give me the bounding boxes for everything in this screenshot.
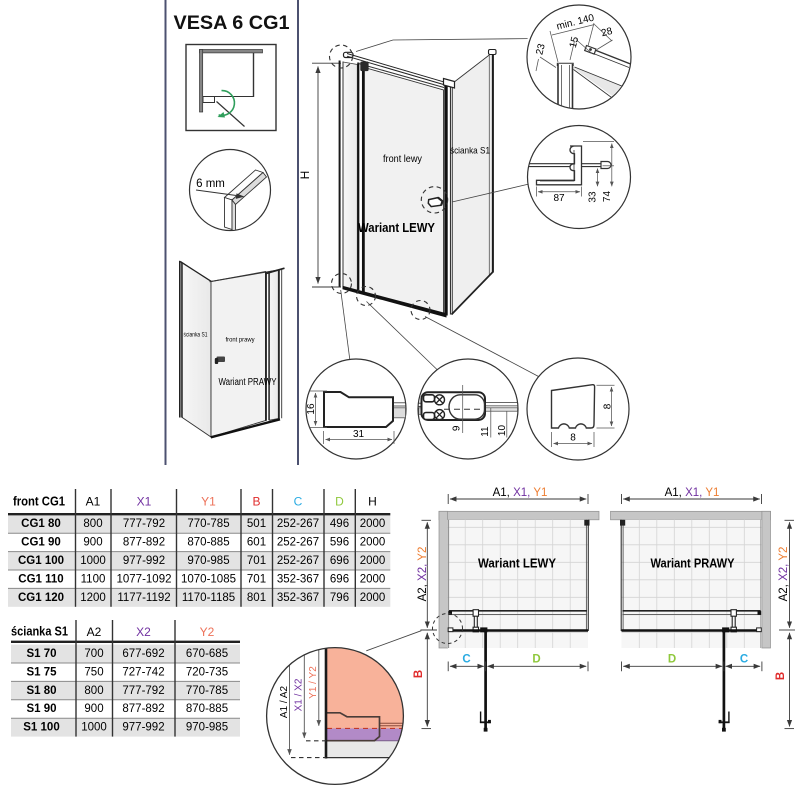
svg-text:2000: 2000 xyxy=(360,555,386,567)
svg-text:701: 701 xyxy=(247,555,266,567)
svg-text:D: D xyxy=(335,495,344,509)
svg-text:877-892: 877-892 xyxy=(122,703,164,715)
svg-text:A1: A1 xyxy=(86,495,101,509)
svg-text:Y1: Y1 xyxy=(201,495,216,509)
svg-text:Y2: Y2 xyxy=(200,625,215,639)
svg-text:352-367: 352-367 xyxy=(277,573,319,585)
svg-text:750: 750 xyxy=(84,666,103,678)
svg-text:252-267: 252-267 xyxy=(277,518,319,530)
svg-text:front prawy: front prawy xyxy=(226,337,256,344)
svg-text:S1 80: S1 80 xyxy=(26,685,56,697)
svg-text:A2, X2, Y2: A2, X2, Y2 xyxy=(417,547,429,602)
svg-text:596: 596 xyxy=(330,537,349,549)
svg-text:900: 900 xyxy=(83,537,102,549)
svg-text:1170-1185: 1170-1185 xyxy=(182,592,235,604)
svg-text:front lewy: front lewy xyxy=(383,154,422,165)
svg-text:CG1 90: CG1 90 xyxy=(21,537,61,549)
svg-text:252-267: 252-267 xyxy=(277,555,319,567)
svg-text:2000: 2000 xyxy=(360,518,386,530)
svg-text:696: 696 xyxy=(330,573,349,585)
svg-text:31: 31 xyxy=(353,429,365,440)
svg-text:701: 701 xyxy=(247,573,266,585)
svg-text:670-685: 670-685 xyxy=(186,648,228,660)
svg-text:VESA 6 CG1: VESA 6 CG1 xyxy=(174,12,290,34)
svg-text:8: 8 xyxy=(570,433,576,444)
svg-text:720-735: 720-735 xyxy=(186,666,228,678)
svg-text:C: C xyxy=(294,495,303,509)
svg-text:A2, X2, Y2: A2, X2, Y2 xyxy=(778,547,790,602)
svg-text:970-985: 970-985 xyxy=(187,555,229,567)
svg-text:2000: 2000 xyxy=(360,573,386,585)
svg-text:Y1 / Y2: Y1 / Y2 xyxy=(308,666,319,699)
svg-text:601: 601 xyxy=(247,537,266,549)
svg-text:727-742: 727-742 xyxy=(122,666,164,678)
svg-text:770-785: 770-785 xyxy=(186,685,228,697)
svg-text:Wariant LEWY: Wariant LEWY xyxy=(478,557,557,571)
svg-text:A1 / A2: A1 / A2 xyxy=(279,685,290,718)
svg-text:H: H xyxy=(368,495,377,509)
svg-text:2000: 2000 xyxy=(360,537,386,549)
svg-text:8: 8 xyxy=(602,403,613,409)
svg-text:CG1 110: CG1 110 xyxy=(18,573,63,585)
svg-text:496: 496 xyxy=(330,518,349,530)
svg-text:CG1 100: CG1 100 xyxy=(18,555,64,567)
svg-text:11: 11 xyxy=(480,426,491,437)
svg-text:X2: X2 xyxy=(136,625,151,639)
svg-text:6 mm: 6 mm xyxy=(196,178,225,190)
svg-text:B: B xyxy=(775,672,787,680)
svg-text:801: 801 xyxy=(247,592,266,604)
svg-text:970-985: 970-985 xyxy=(186,722,228,734)
svg-text:S1 70: S1 70 xyxy=(26,648,56,660)
svg-text:S1 75: S1 75 xyxy=(26,666,57,678)
svg-text:10: 10 xyxy=(497,425,508,437)
svg-text:Wariant PRAWY: Wariant PRAWY xyxy=(651,557,736,571)
svg-text:X1 / X2: X1 / X2 xyxy=(294,678,305,711)
svg-text:1070-1085: 1070-1085 xyxy=(181,573,236,585)
svg-text:870-885: 870-885 xyxy=(186,703,228,715)
svg-text:C: C xyxy=(462,654,470,666)
svg-text:9: 9 xyxy=(452,425,463,431)
svg-text:A1, X1, Y1: A1, X1, Y1 xyxy=(665,487,720,499)
svg-text:A1, X1, Y1: A1, X1, Y1 xyxy=(493,487,548,499)
svg-text:700: 700 xyxy=(84,648,103,660)
svg-text:B: B xyxy=(252,495,260,509)
svg-text:796: 796 xyxy=(330,592,349,604)
svg-text:252-267: 252-267 xyxy=(277,537,319,549)
svg-text:X1: X1 xyxy=(137,495,152,509)
svg-text:S1 90: S1 90 xyxy=(26,703,56,715)
svg-text:877-892: 877-892 xyxy=(123,537,165,549)
svg-text:870-885: 870-885 xyxy=(187,537,229,549)
svg-text:2000: 2000 xyxy=(360,592,386,604)
svg-text:CG1 80: CG1 80 xyxy=(21,518,61,530)
svg-text:900: 900 xyxy=(84,703,103,715)
svg-text:front CG1: front CG1 xyxy=(13,495,65,509)
svg-text:ścianka S1: ścianka S1 xyxy=(184,332,208,339)
svg-text:S1 100: S1 100 xyxy=(23,722,59,734)
svg-text:H: H xyxy=(298,171,312,180)
svg-text:501: 501 xyxy=(247,518,266,530)
svg-text:33: 33 xyxy=(588,191,599,203)
svg-text:977-992: 977-992 xyxy=(123,555,165,567)
svg-text:D: D xyxy=(532,654,540,666)
svg-text:C: C xyxy=(740,654,748,666)
svg-text:352-367: 352-367 xyxy=(277,592,319,604)
svg-text:D: D xyxy=(668,654,676,666)
svg-text:87: 87 xyxy=(553,193,565,204)
svg-text:977-992: 977-992 xyxy=(122,722,164,734)
svg-text:777-792: 777-792 xyxy=(123,518,165,530)
svg-text:CG1 120: CG1 120 xyxy=(18,592,64,604)
svg-text:1100: 1100 xyxy=(81,573,106,585)
svg-text:ścianka S1: ścianka S1 xyxy=(11,625,68,639)
svg-text:Wariant PRAWY: Wariant PRAWY xyxy=(219,377,277,388)
svg-text:770-785: 770-785 xyxy=(187,518,229,530)
svg-text:1077-1092: 1077-1092 xyxy=(117,573,172,585)
svg-text:1177-1192: 1177-1192 xyxy=(117,592,170,604)
svg-text:A2: A2 xyxy=(87,625,102,639)
svg-text:1000: 1000 xyxy=(80,555,106,567)
svg-text:1000: 1000 xyxy=(81,722,107,734)
svg-text:677-692: 677-692 xyxy=(122,648,164,660)
svg-text:800: 800 xyxy=(84,685,103,697)
svg-text:B: B xyxy=(413,670,425,678)
svg-text:16: 16 xyxy=(306,403,317,415)
svg-text:777-792: 777-792 xyxy=(122,685,164,697)
svg-text:800: 800 xyxy=(83,518,102,530)
svg-text:1200: 1200 xyxy=(80,592,106,604)
svg-text:Wariant LEWY: Wariant LEWY xyxy=(358,220,435,235)
svg-text:74: 74 xyxy=(602,191,613,203)
svg-text:696: 696 xyxy=(330,555,349,567)
svg-text:ścianka S1: ścianka S1 xyxy=(450,146,490,156)
